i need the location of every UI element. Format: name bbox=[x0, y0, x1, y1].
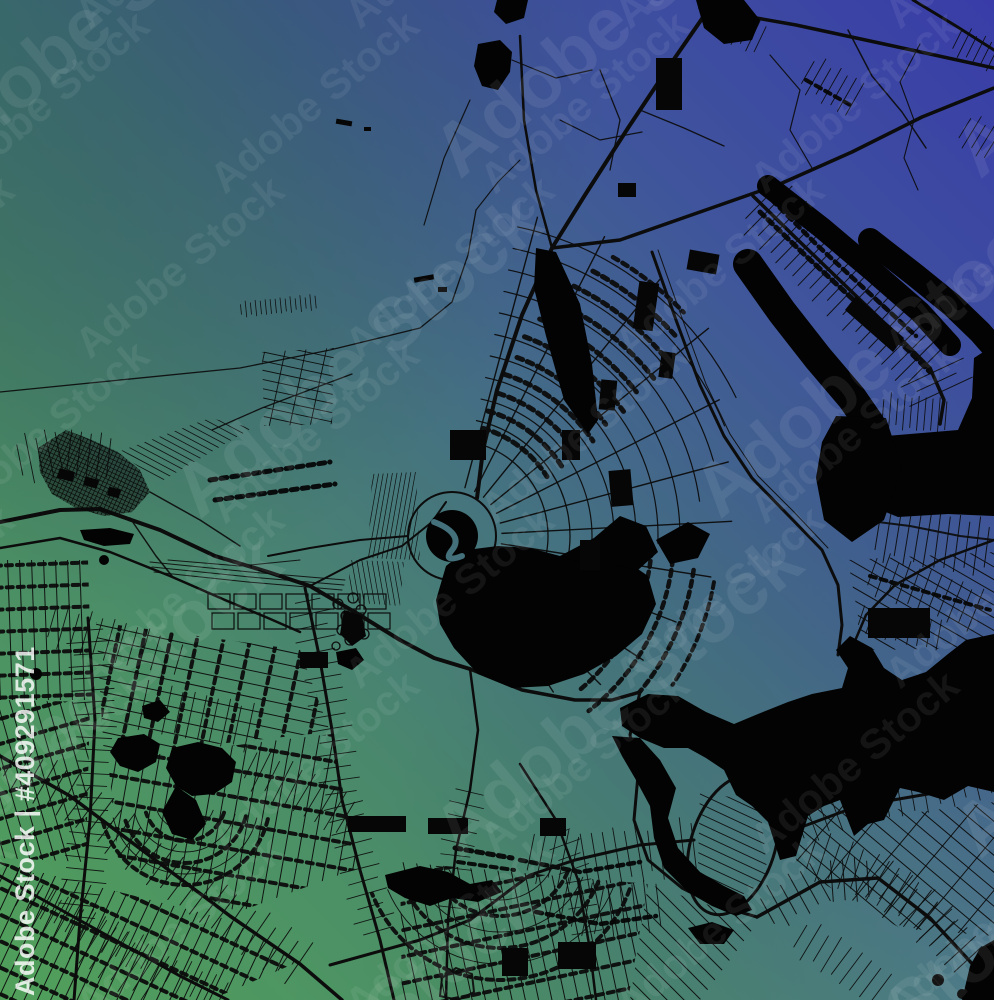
watermark-vertical-text: Adobe Stock | #409291571 bbox=[10, 646, 40, 996]
stock-map-image: Adobe StockAdobe StockAdobe StockAdobe S… bbox=[0, 0, 994, 1000]
city-map-canvas: Adobe StockAdobe StockAdobe StockAdobe S… bbox=[0, 0, 994, 1000]
